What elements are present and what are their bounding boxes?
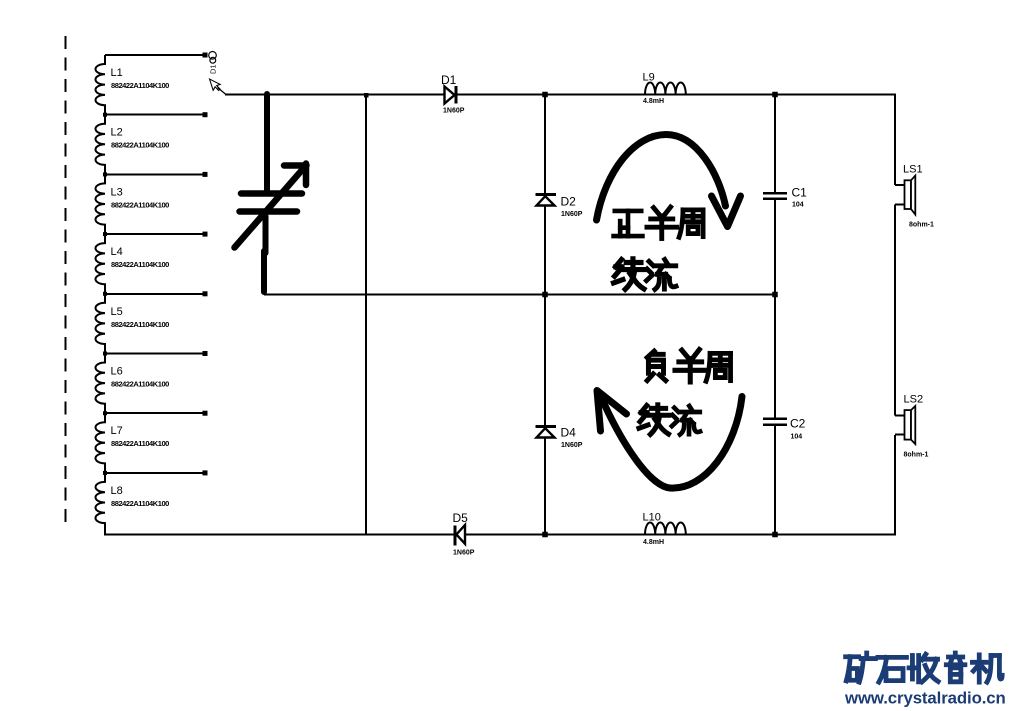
svg-text:C2: C2 <box>790 417 806 431</box>
svg-text:1N60P: 1N60P <box>453 550 475 557</box>
svg-text:882422A1104K100: 882422A1104K100 <box>111 380 169 389</box>
svg-text:L1: L1 <box>111 67 123 79</box>
svg-text:L4: L4 <box>111 246 123 258</box>
svg-text:LS2: LS2 <box>904 394 924 406</box>
svg-text:104: 104 <box>792 202 804 209</box>
svg-text:4.8mH: 4.8mH <box>643 539 664 546</box>
svg-text:L2: L2 <box>111 127 123 139</box>
svg-text:D1: D1 <box>441 73 457 87</box>
svg-text:882422A1104K100: 882422A1104K100 <box>111 200 169 209</box>
svg-text:D2: D2 <box>561 195 577 209</box>
svg-text:LS1: LS1 <box>903 164 923 176</box>
svg-text:1N60P: 1N60P <box>561 211 583 218</box>
svg-text:882422A1104K100: 882422A1104K100 <box>111 499 169 508</box>
svg-text:L8: L8 <box>111 485 123 497</box>
svg-text:L6: L6 <box>111 366 123 378</box>
svg-text:L9: L9 <box>643 72 655 84</box>
svg-text:104: 104 <box>791 434 803 441</box>
svg-text:882422A1104K100: 882422A1104K100 <box>111 320 169 329</box>
svg-text:882422A1104K100: 882422A1104K100 <box>111 81 169 90</box>
svg-text:882422A1104K100: 882422A1104K100 <box>111 439 169 448</box>
svg-text:L5: L5 <box>111 306 123 318</box>
svg-text:D1: D1 <box>209 64 218 74</box>
svg-text:L10: L10 <box>643 512 661 524</box>
svg-text:8ohm-1: 8ohm-1 <box>909 222 934 229</box>
svg-text:8ohm-1: 8ohm-1 <box>904 452 929 459</box>
svg-text:882422A1104K100: 882422A1104K100 <box>111 141 169 150</box>
svg-text:D5: D5 <box>453 511 469 525</box>
svg-text:1N60P: 1N60P <box>443 108 465 115</box>
svg-text:www.crystalradio.cn: www.crystalradio.cn <box>844 689 1006 708</box>
svg-text:L3: L3 <box>111 186 123 198</box>
svg-text:882422A1104K100: 882422A1104K100 <box>111 260 169 269</box>
svg-text:D4: D4 <box>561 426 577 440</box>
svg-text:1N60P: 1N60P <box>561 442 583 449</box>
svg-text:L7: L7 <box>111 425 123 437</box>
svg-text:4.8mH: 4.8mH <box>643 98 664 105</box>
svg-text:C1: C1 <box>792 186 808 200</box>
